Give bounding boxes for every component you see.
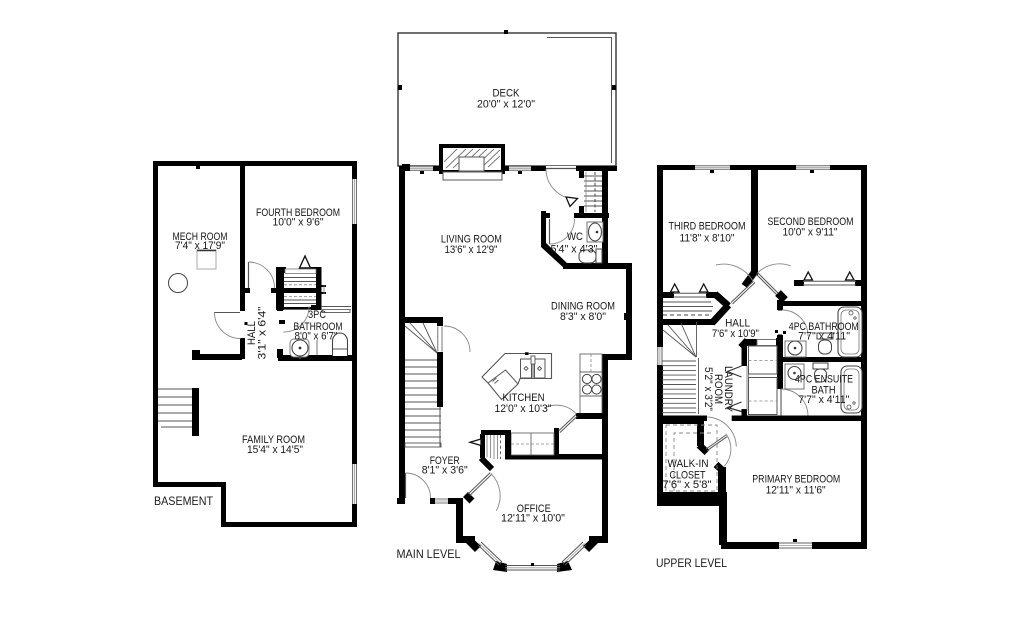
svg-text:UPPER LEVEL: UPPER LEVEL [656,556,727,570]
svg-text:7'7" x 4'11": 7'7" x 4'11" [798,394,849,406]
svg-text:7'6" x 10'9": 7'6" x 10'9" [712,328,759,340]
svg-text:BASEMENT: BASEMENT [154,494,213,508]
svg-text:13'6" x 12'9": 13'6" x 12'9" [445,244,498,256]
svg-text:12'11" x 10'0": 12'11" x 10'0" [501,513,565,525]
svg-text:11'8" x 8'10": 11'8" x 8'10" [680,233,735,245]
svg-text:10'0" x 9'11": 10'0" x 9'11" [783,227,838,239]
svg-text:10'0" x 9'6": 10'0" x 9'6" [273,217,324,229]
svg-text:12'11" x 11'6": 12'11" x 11'6" [766,485,826,497]
svg-text:MAIN LEVEL: MAIN LEVEL [397,547,461,561]
svg-text:7'6" x 5'8": 7'6" x 5'8" [663,479,712,491]
svg-text:12'0" x 10'3": 12'0" x 10'3" [495,403,552,415]
svg-text:3'1" x 6'4": 3'1" x 6'4" [257,306,269,359]
svg-text:5'2" x 3'2": 5'2" x 3'2" [702,367,714,411]
svg-text:8'3" x 8'0": 8'3" x 8'0" [560,311,606,323]
svg-text:3PC: 3PC [308,309,326,321]
svg-text:THIRD BEDROOM: THIRD BEDROOM [669,221,746,233]
svg-text:15'4" x 14'5": 15'4" x 14'5" [247,444,303,456]
svg-text:WALK-IN: WALK-IN [668,458,709,470]
svg-text:5'4" x 4'3": 5'4" x 4'3" [551,244,598,256]
svg-text:7'7" x 4'11": 7'7" x 4'11" [798,331,850,343]
svg-text:20'0" x 12'0": 20'0" x 12'0" [477,99,535,111]
svg-text:WC: WC [567,231,583,243]
svg-text:7'4" x 17'9": 7'4" x 17'9" [175,240,225,252]
svg-text:8'0" x 6'7": 8'0" x 6'7" [295,331,338,343]
svg-text:8'1" x 3'6": 8'1" x 3'6" [422,465,468,477]
